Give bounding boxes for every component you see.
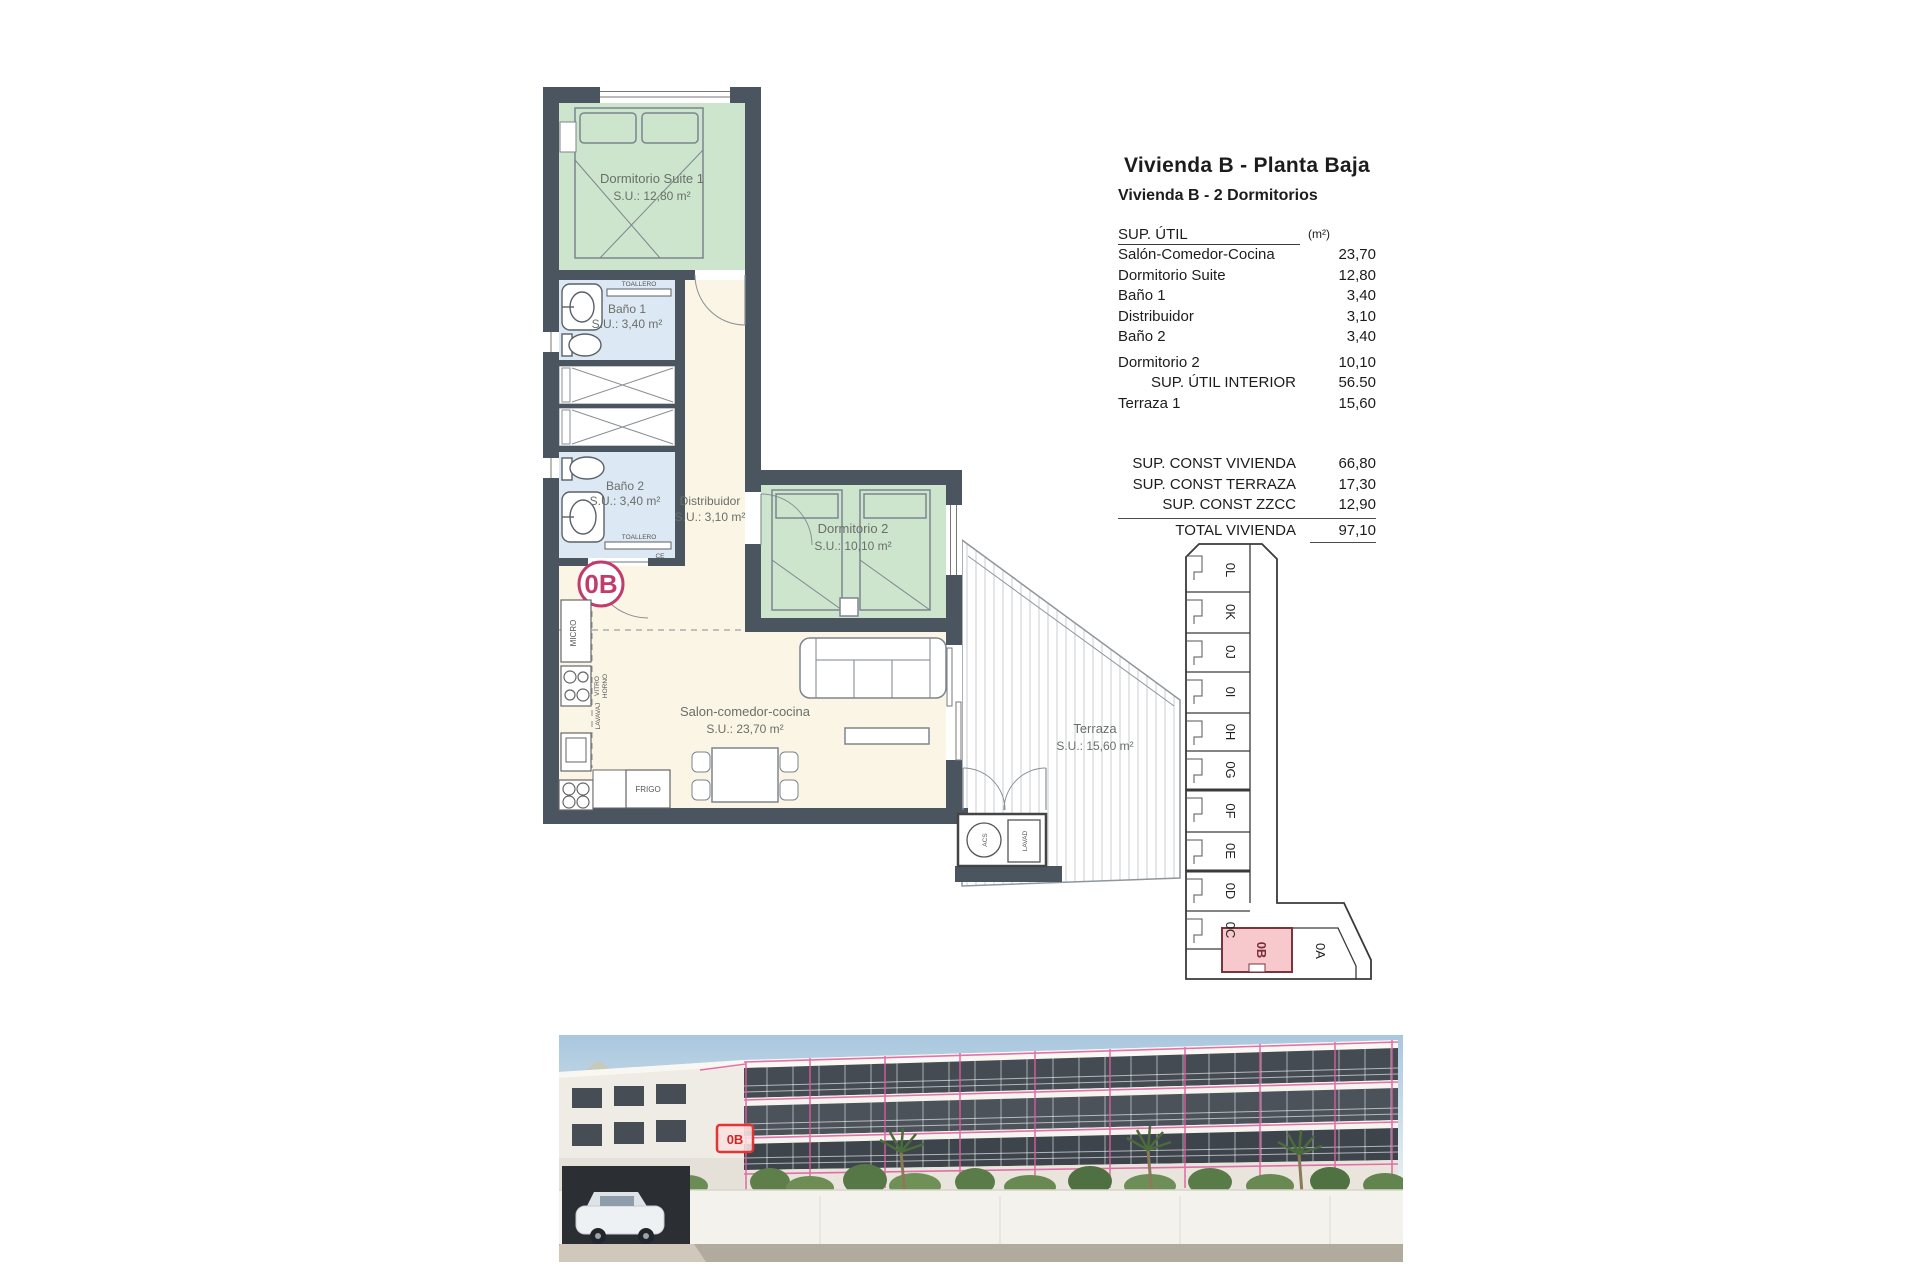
table-row: Terraza 1 15,60: [1118, 394, 1376, 415]
entry-door-label: CE: [655, 553, 665, 560]
dorm2-area: S.U.: 10,10 m²: [814, 539, 891, 553]
row-label: Dormitorio 2: [1118, 353, 1310, 374]
row-label: SUP. CONST ZZCC: [1118, 495, 1310, 516]
key-plan-unit: 0G: [1223, 761, 1238, 778]
key-plan-unit: 0C: [1223, 922, 1238, 939]
table-summary: SUP. CONST VIVIENDA 66,80 SUP. CONST TER…: [1118, 454, 1376, 543]
row-value: 3,10: [1310, 307, 1376, 328]
bano1-area: S.U.: 3,40 m²: [592, 317, 663, 331]
row-value: 12,80: [1310, 266, 1376, 287]
row-label: Terraza 1: [1118, 394, 1310, 415]
row-label: Baño 1: [1118, 286, 1310, 307]
distribuidor-label: Distribuidor: [680, 494, 741, 508]
table-row: Baño 2 3,40: [1118, 327, 1376, 348]
towel-rail-label-1: TOALLERO: [622, 281, 657, 288]
row-value: 15,60: [1310, 394, 1376, 415]
row-label: Dormitorio Suite: [1118, 266, 1310, 287]
bano1-label: Baño 1: [608, 302, 646, 316]
floor-plan: CE Dormitorio Suite 1 S.U.: 12,80 m² TOA…: [543, 87, 1180, 886]
key-plan-unit-a: 0A: [1313, 943, 1328, 959]
table-row: Baño 1 3,40: [1118, 286, 1376, 307]
suite-area: S.U.: 12,80 m²: [613, 189, 690, 203]
key-plan-unit: 0E: [1223, 843, 1238, 859]
key-plan-unit: 0J: [1223, 645, 1238, 659]
key-plan-unit-b-door: [1249, 964, 1265, 972]
row-value: 17,30: [1310, 475, 1376, 496]
key-plan: 0L 0K 0J 0I 0H 0G 0F 0E 0D 0C 0B 0A: [1186, 544, 1371, 979]
distribuidor-area: S.U.: 3,10 m²: [675, 510, 746, 524]
photo-unit-marker-label: 0B: [727, 1132, 744, 1147]
terraza-area: S.U.: 15,60 m²: [1056, 739, 1133, 753]
bano2-area: S.U.: 3,40 m²: [590, 494, 661, 508]
summary-row: SUP. CONST ZZCC 12,90: [1118, 495, 1376, 516]
table-row-interior-total: SUP. ÚTIL INTERIOR 56.50: [1118, 373, 1376, 394]
table-header-label: SUP. ÚTIL: [1118, 226, 1300, 245]
wardrobe-1: [559, 366, 675, 404]
building-photo: 0B: [548, 1035, 1407, 1262]
lavavaj-label: LAVAVAJ: [595, 703, 602, 730]
summary-row: SUP. CONST TERRAZA 17,30: [1118, 475, 1376, 496]
row-label: Distribuidor: [1118, 307, 1310, 328]
row-label: Salón-Comedor-Cocina: [1118, 245, 1310, 266]
page-subtitle: Vivienda B - 2 Dormitorios: [1118, 187, 1376, 205]
photo-unit-marker: 0B: [717, 1125, 753, 1152]
row-value: 3,40: [1310, 327, 1376, 348]
suite-label: Dormitorio Suite 1: [600, 171, 704, 186]
key-plan-unit: 0L: [1223, 563, 1238, 577]
salon-label: Salon-comedor-cocina: [680, 704, 811, 719]
key-plan-outline: [1186, 544, 1371, 979]
row-value: 12,90: [1310, 495, 1376, 516]
bano2-label: Baño 2: [606, 479, 644, 493]
photo-driveway: [548, 1244, 706, 1262]
row-value: 3,40: [1310, 286, 1376, 307]
vitro-label: VITRO: [594, 676, 601, 696]
table-header: SUP. ÚTIL (m²): [1118, 226, 1376, 245]
terraza-label: Terraza: [1073, 721, 1117, 736]
row-value: 56.50: [1310, 373, 1376, 394]
lavad-label: LAVAD: [1022, 831, 1029, 852]
table-row: Dormitorio Suite 12,80: [1118, 266, 1376, 287]
row-value: 10,10: [1310, 353, 1376, 374]
table-header-unit: (m²): [1308, 227, 1330, 241]
suite-nightstand: [560, 122, 576, 152]
wardrobe-2: [559, 408, 675, 446]
row-label: SUP. CONST VIVIENDA: [1118, 454, 1310, 475]
summary-row: SUP. CONST VIVIENDA 66,80: [1118, 454, 1376, 475]
acs-label: ACS: [982, 833, 989, 847]
dorm2-label: Dormitorio 2: [818, 521, 889, 536]
towel-rail-label-2: TOALLERO: [622, 534, 657, 541]
horno-label: HORNO: [602, 674, 609, 698]
unit-badge-label: 0B: [584, 569, 617, 599]
row-value: 66,80: [1310, 454, 1376, 475]
table-total-row: TOTAL VIVIENDA 97,10: [1118, 518, 1376, 544]
drawing-canvas: CE Dormitorio Suite 1 S.U.: 12,80 m² TOA…: [0, 0, 1920, 1280]
row-value: 23,70: [1310, 245, 1376, 266]
row-label: SUP. CONST TERRAZA: [1118, 475, 1310, 496]
frigo-label: FRIGO: [635, 785, 660, 794]
row-label: Baño 2: [1118, 327, 1310, 348]
key-plan-unit: 0I: [1223, 687, 1238, 698]
row-label: TOTAL VIVIENDA: [1118, 521, 1310, 544]
salon-area: S.U.: 23,70 m²: [706, 722, 783, 736]
key-plan-unit: 0K: [1223, 604, 1238, 620]
key-plan-unit: 0H: [1223, 724, 1238, 741]
key-plan-unit: 0F: [1223, 803, 1238, 818]
table-row: Dormitorio 2 10,10: [1118, 353, 1376, 374]
key-plan-unit-b: 0B: [1254, 942, 1269, 959]
micro-label: MICRO: [569, 620, 578, 647]
row-value: 97,10: [1310, 521, 1376, 544]
key-plan-unit: 0D: [1223, 883, 1238, 900]
table-row: Distribuidor 3,10: [1118, 307, 1376, 328]
area-table-panel: Vivienda B - Planta Baja Vivienda B - 2 …: [1118, 154, 1376, 543]
table-row: Salón-Comedor-Cocina 23,70: [1118, 245, 1376, 266]
plan-sheet: CE Dormitorio Suite 1 S.U.: 12,80 m² TOA…: [0, 0, 1920, 1280]
row-label: SUP. ÚTIL INTERIOR: [1118, 373, 1310, 394]
room-suite: [559, 103, 745, 270]
page-title: Vivienda B - Planta Baja: [1118, 154, 1376, 178]
